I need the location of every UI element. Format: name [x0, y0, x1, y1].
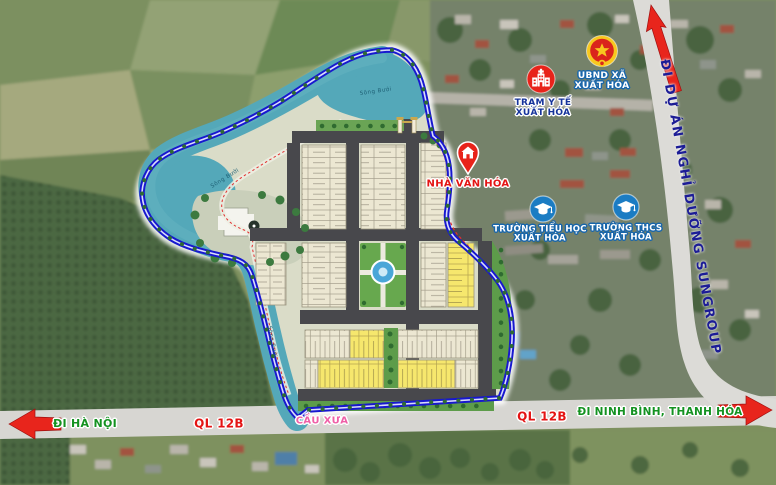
truong-thcs-label: TRƯỜNG THCSXUẤT HÓA [590, 225, 663, 244]
di-ha-noi-label: ĐI HÀ NỘI [53, 418, 117, 430]
truong-tieu-hoc-label: TRƯỜNG TIỂU HỌCXUẤT HÓA [493, 226, 587, 245]
emblem-icon [584, 34, 620, 74]
hospital-icon [526, 64, 556, 98]
cau-xua-label: CẦU XƯA [296, 416, 349, 427]
di-ninh-binh-label: ĐI NINH BÌNH, THANH HÓA [577, 407, 742, 419]
ql12b-right-label: QL 12B [517, 410, 567, 423]
tram-y-te-label: TRẠM Y TẾXUẤT HÓA [515, 99, 572, 119]
school-icon-tieu-hoc [529, 195, 557, 227]
ql12b-left-label: QL 12B [194, 417, 244, 430]
masterplan-map: Sông Bưởi Sông Bưởi Sông Bưởi TRẠM Y TẾX… [0, 0, 776, 485]
school-icon-thcs [612, 193, 640, 225]
nha-van-hoa-label: NHÀ VĂN HÓA [427, 179, 510, 190]
ubnd-label: UBND XÃXUẤT HÓA [575, 72, 630, 92]
house-pin-icon [454, 140, 482, 180]
